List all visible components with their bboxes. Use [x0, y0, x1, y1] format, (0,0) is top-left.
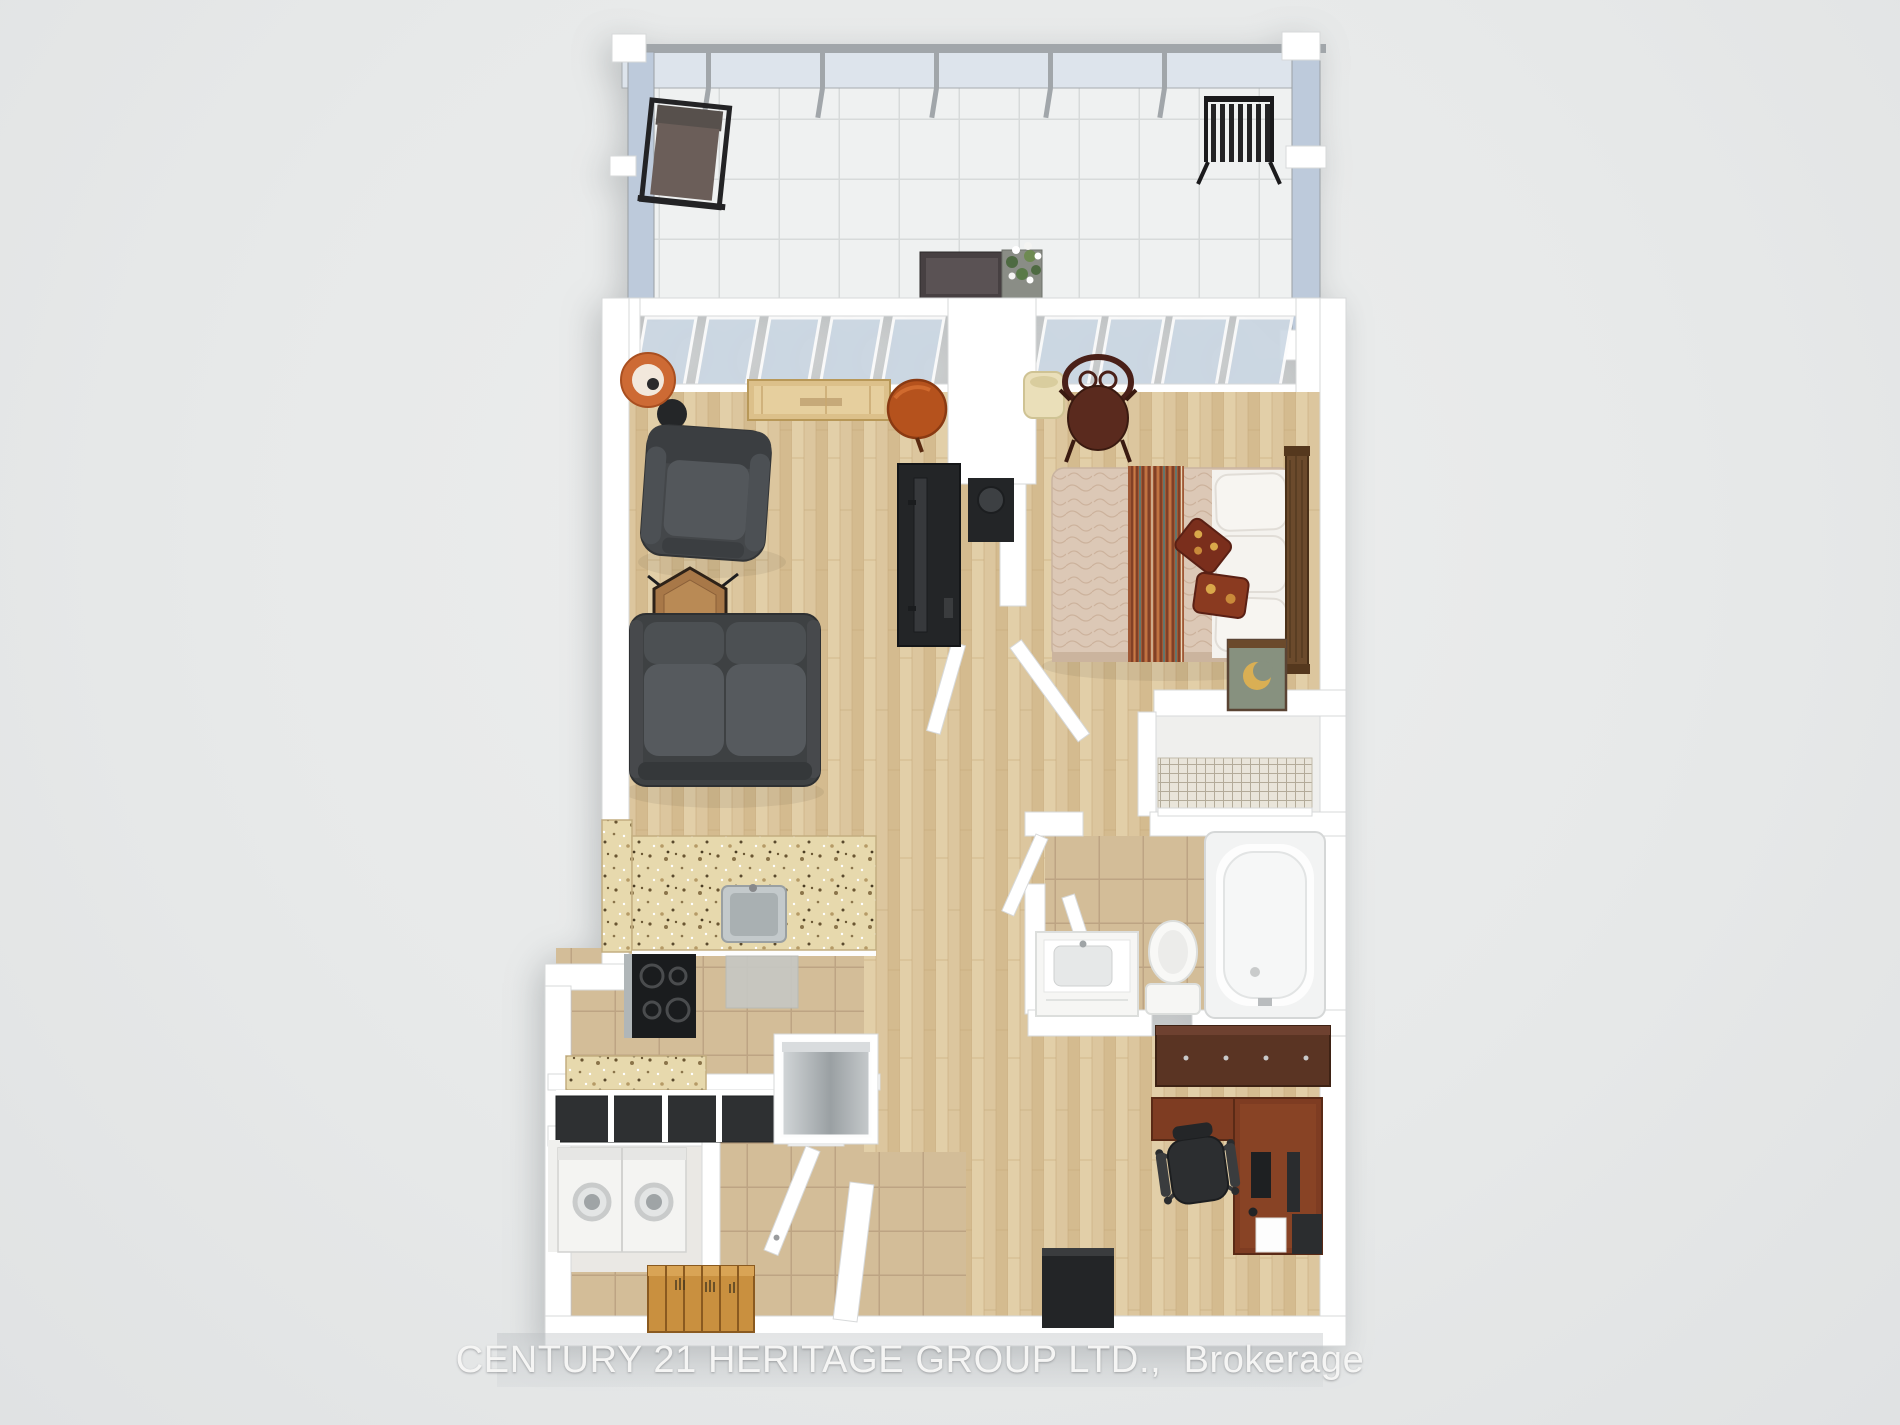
sofa-arm [630, 620, 643, 778]
cooktop [624, 954, 696, 1038]
armchair-cushion [663, 459, 750, 541]
mouse [1249, 1208, 1258, 1217]
window-bench [748, 380, 890, 420]
wire-shelving [1158, 758, 1312, 814]
waste-basket [1024, 372, 1064, 418]
loveseat-sofa [630, 614, 820, 786]
vanity-sink [1036, 932, 1138, 1016]
granite-peninsula [632, 836, 876, 956]
outdoor-chair-seat [650, 123, 719, 201]
armchair [640, 424, 773, 562]
sink-faucet [1080, 941, 1087, 948]
pillow [1215, 473, 1287, 531]
chair-seat [1166, 1134, 1230, 1205]
pc-tower [1292, 1214, 1322, 1254]
laundry [548, 1140, 686, 1252]
window-pane [1226, 318, 1292, 386]
floor-plan-stage: CENTURY 21 HERITAGE GROUP LTD., Brokerag… [0, 0, 1900, 1425]
remote [944, 598, 953, 618]
granite-counter-wall [602, 820, 632, 952]
dresser [1156, 1026, 1330, 1086]
partition-block [948, 298, 1036, 484]
sofa-back-cushion [644, 622, 724, 664]
tub-faucet [1258, 998, 1272, 1006]
accent-cushion [1192, 572, 1249, 619]
toilet-tank [1146, 984, 1200, 1014]
sofa-arm [807, 620, 820, 778]
headboard [1284, 446, 1310, 674]
sofa-seat-cushion [644, 664, 724, 756]
watermark-text: CENTURY 21 HERITAGE GROUP LTD., Brokerag… [456, 1339, 1365, 1382]
rail-post-left-mid [610, 156, 636, 176]
tub-drain [1250, 967, 1260, 977]
dryer [637, 1185, 671, 1219]
laundry-wall-right [702, 1126, 720, 1274]
washer [575, 1185, 609, 1219]
window-pane [758, 318, 820, 386]
granite-counter-lower [566, 1056, 706, 1090]
bathroom-wall-top-left [1025, 812, 1083, 836]
sofa-seat-cushion [726, 664, 806, 756]
bathtub [1205, 832, 1325, 1018]
striped-runner [1128, 466, 1184, 662]
toilet [1146, 921, 1200, 1014]
speaker [978, 487, 1004, 513]
keyboard [1251, 1152, 1271, 1198]
dishwasher-handle [782, 1042, 870, 1052]
window-pane [882, 318, 944, 386]
sink-faucet [749, 884, 757, 892]
nightstand [1228, 640, 1286, 710]
sofa-back-cushion [726, 622, 806, 664]
shoe-bench [648, 1266, 754, 1332]
rail-post-top-right [1282, 32, 1320, 60]
watermark-bar: CENTURY 21 HERITAGE GROUP LTD., Brokerag… [497, 1333, 1323, 1387]
window-pane [696, 318, 758, 386]
closet-wall [1138, 712, 1156, 816]
black-cabinets [556, 1090, 780, 1142]
rail-post-top-left [612, 34, 646, 62]
closet [1158, 758, 1312, 816]
apartment-plan [545, 32, 1346, 1346]
paper [1256, 1218, 1286, 1252]
rail-post-right-mid [1286, 146, 1326, 168]
media-unit [968, 478, 1014, 542]
monitor [1287, 1152, 1300, 1212]
sink-basin [1054, 946, 1112, 986]
tv-console [898, 464, 960, 646]
window-pane [1162, 318, 1228, 386]
storage-cube [1042, 1248, 1114, 1328]
pillows [1215, 473, 1287, 653]
glass-railing-top [622, 50, 1318, 88]
window-pane [820, 318, 882, 386]
floor-plan-image [0, 0, 1900, 1425]
railing-top-rail [614, 44, 1326, 53]
dishwasher [774, 1034, 878, 1144]
chair-seat [1068, 386, 1128, 450]
floor-mat [726, 956, 798, 1008]
glass-railing-left [628, 52, 654, 302]
